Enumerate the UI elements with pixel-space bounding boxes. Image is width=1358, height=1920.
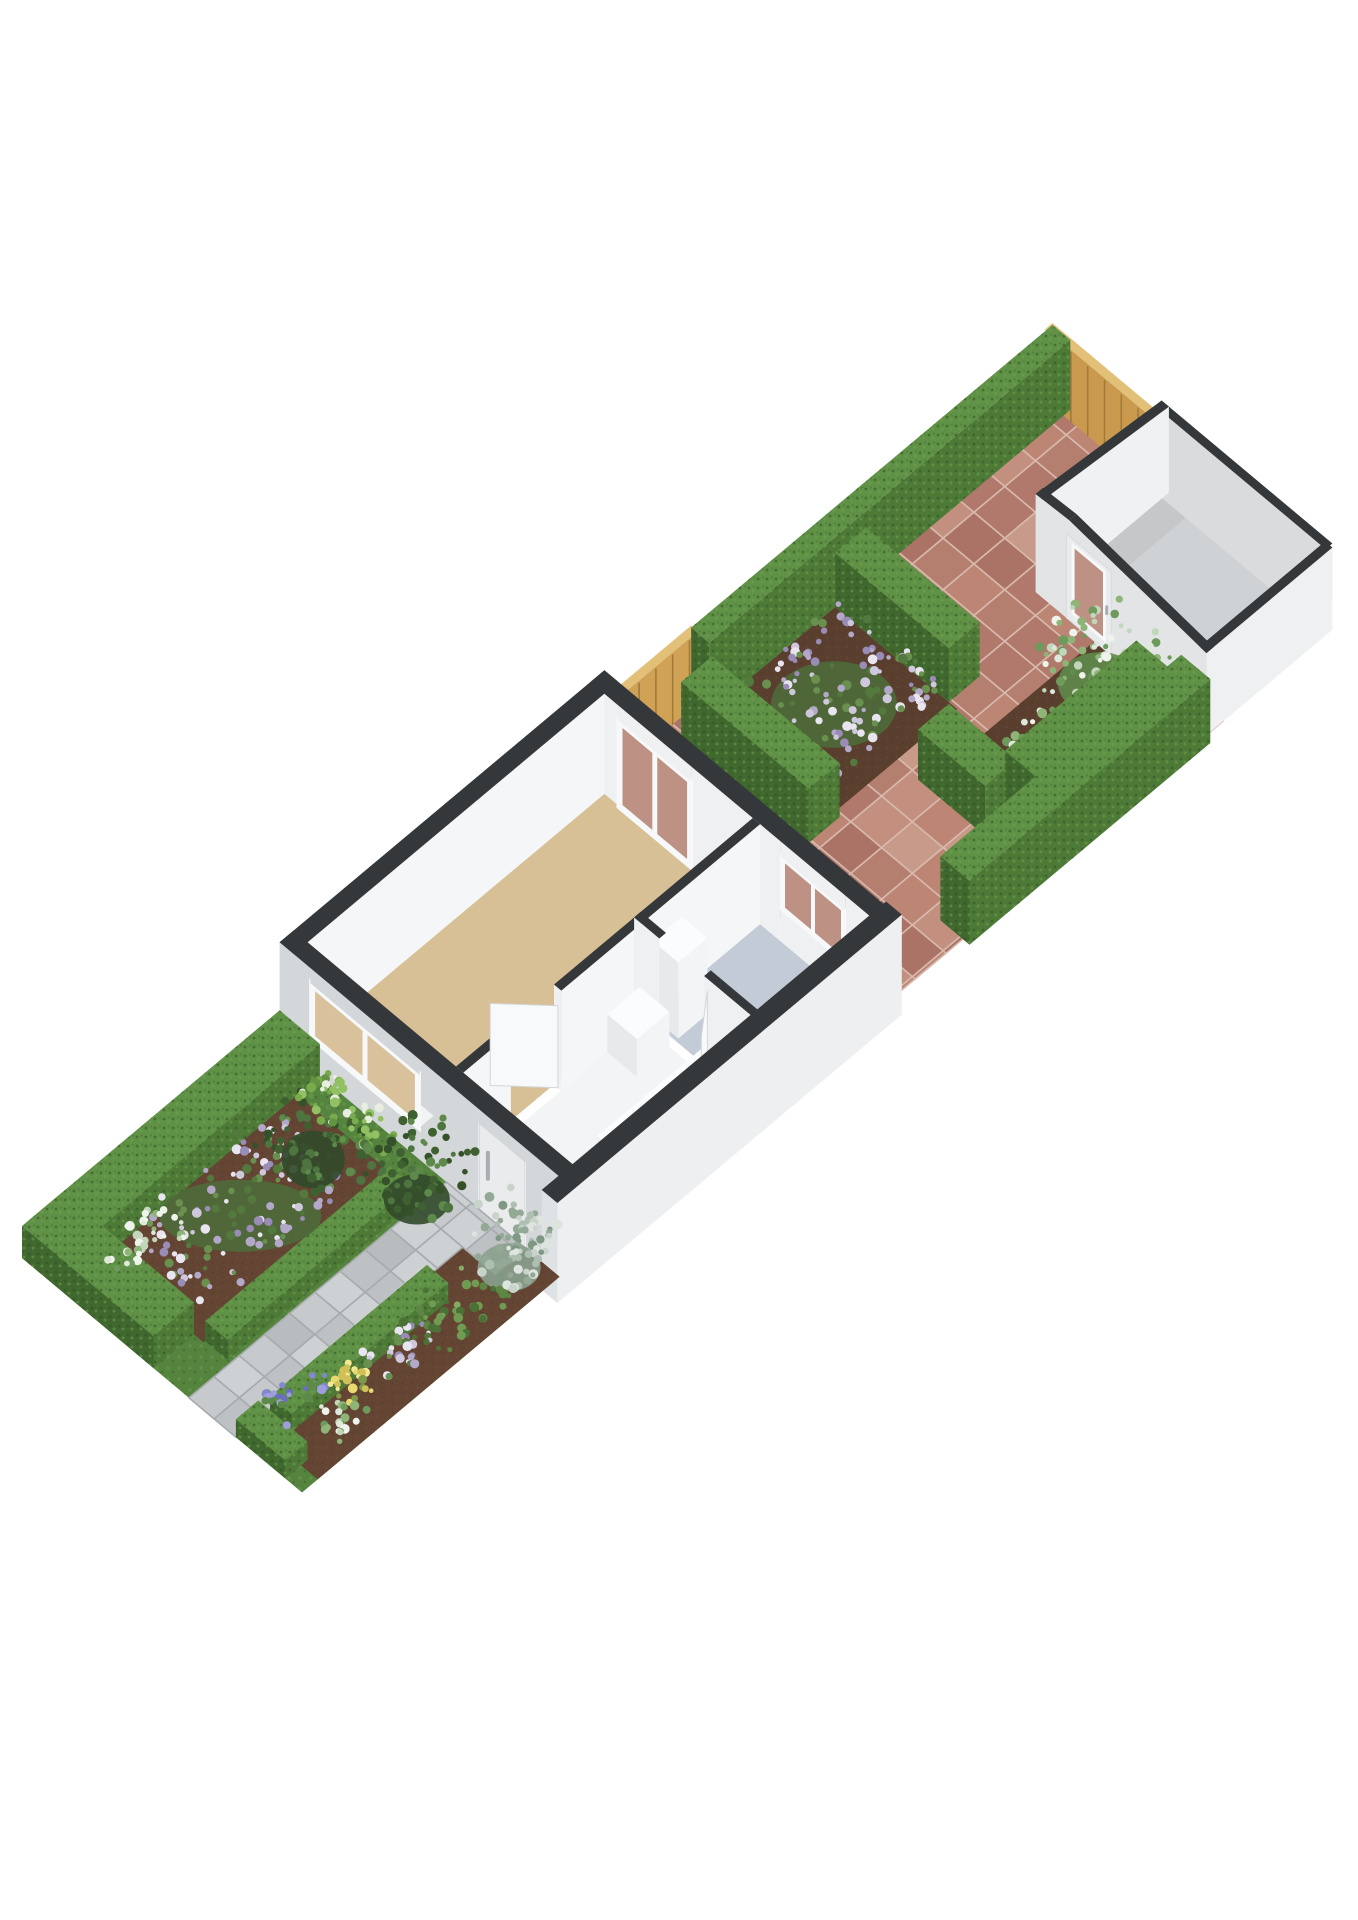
scene-canvas [0,0,1358,1920]
living-room-door-leaf [490,1003,558,1087]
floorplan-3d-render [0,0,1358,1920]
